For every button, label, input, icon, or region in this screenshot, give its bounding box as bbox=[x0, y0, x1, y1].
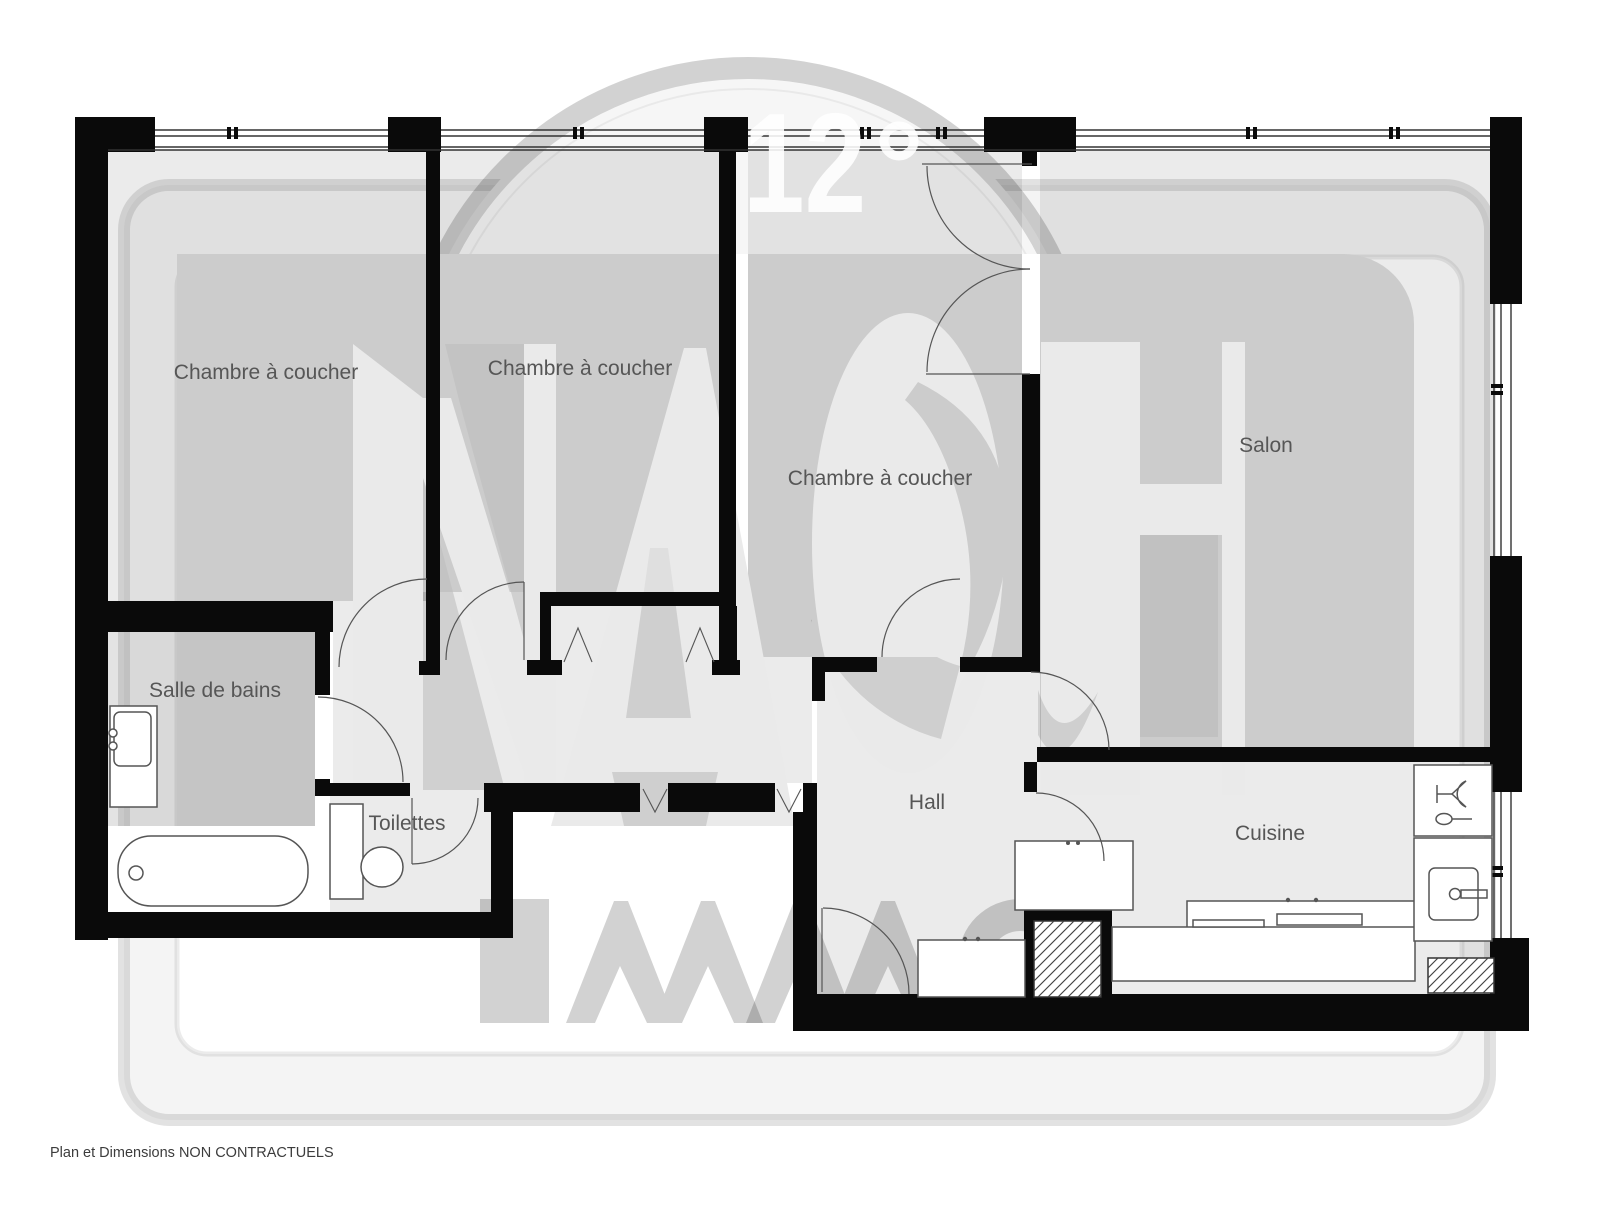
svg-text:12: 12 bbox=[743, 84, 866, 242]
svg-text:Chambre à coucher: Chambre à coucher bbox=[174, 361, 358, 384]
svg-text:Chambre à coucher: Chambre à coucher bbox=[788, 467, 972, 490]
svg-text:Salle de bains: Salle de bains bbox=[149, 679, 281, 702]
svg-text:Hall: Hall bbox=[909, 791, 945, 814]
svg-text:Plan et Dimensions NON CONTRAC: Plan et Dimensions NON CONTRACTUELS bbox=[50, 1145, 334, 1161]
svg-text:Cuisine: Cuisine bbox=[1235, 822, 1305, 845]
svg-text:Chambre à coucher: Chambre à coucher bbox=[488, 357, 672, 380]
svg-text:Salon: Salon bbox=[1239, 434, 1293, 457]
svg-text:Toilettes: Toilettes bbox=[368, 812, 445, 835]
